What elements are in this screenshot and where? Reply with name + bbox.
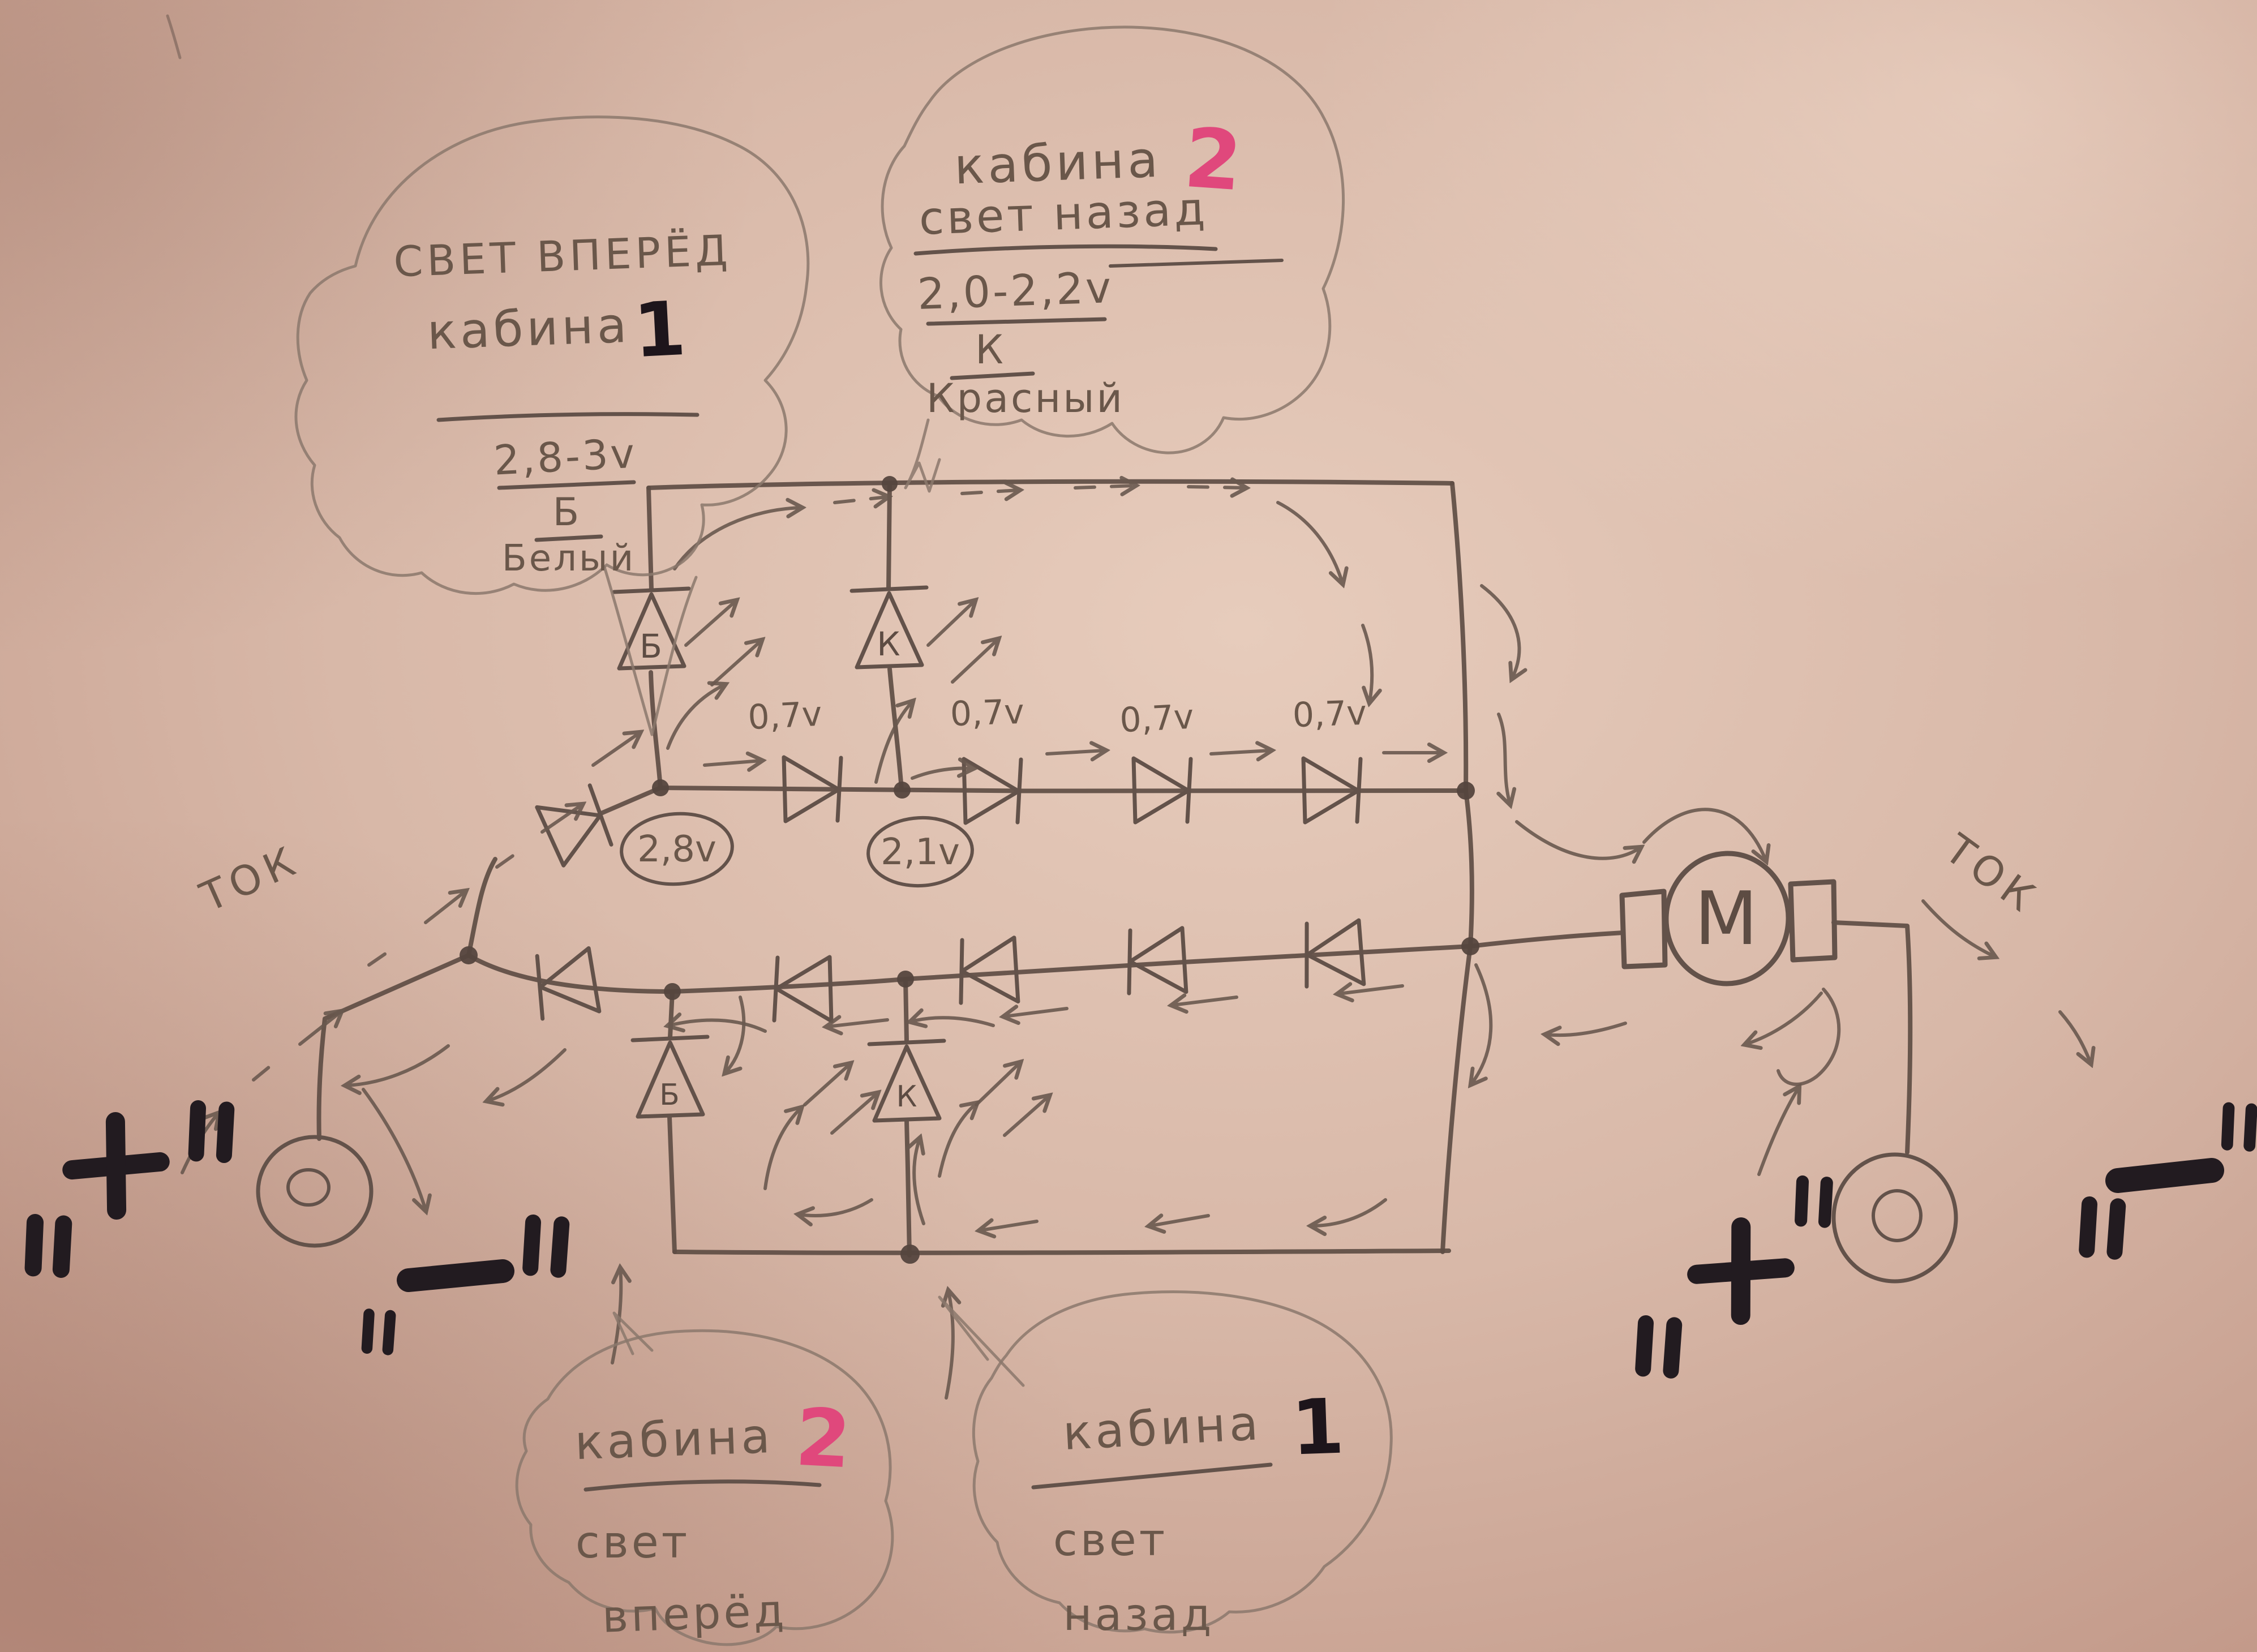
voltage-range: 2,8-3v bbox=[492, 429, 638, 484]
bottom-white-led-letter: Б bbox=[659, 1078, 680, 1112]
junction-node bbox=[460, 946, 478, 964]
red-led1-anode-wire bbox=[889, 484, 890, 589]
cab-word: кабина bbox=[574, 1408, 774, 1470]
wire-letter: К bbox=[975, 327, 1003, 373]
cab-number: 1 bbox=[632, 285, 688, 375]
voltage-range: 2,0-2,2v bbox=[917, 262, 1114, 319]
diode-drop-label: 0,7v bbox=[950, 692, 1025, 735]
wire-color-name: Красный bbox=[926, 375, 1125, 422]
wire-letter: Б bbox=[553, 490, 580, 535]
junction-node bbox=[652, 779, 669, 796]
cab-number: 2 bbox=[793, 1392, 853, 1487]
junction-node bbox=[894, 782, 911, 799]
red-led2-anode-wire bbox=[906, 979, 907, 1041]
bottom-bus-wire bbox=[675, 1251, 1449, 1253]
bubble-line1: свет bbox=[1053, 1515, 1168, 1566]
motor-label: M bbox=[1694, 876, 1758, 962]
minus-icon bbox=[409, 1271, 503, 1280]
cab-word: кабина bbox=[1062, 1395, 1263, 1461]
red-led2-cathode-wire bbox=[907, 1121, 909, 1255]
bubble-title: свет назад bbox=[918, 182, 1209, 245]
bubble-line1: свет bbox=[576, 1517, 690, 1568]
node-voltage-right: 2,1v bbox=[881, 831, 960, 873]
photographed-schematic-page: Б К Б К M 2,8v 2,1v 0,7v 0,7v 0,7v 0,7v … bbox=[0, 0, 2257, 1652]
bubble-line2: вперёд bbox=[601, 1585, 787, 1642]
junction-node bbox=[664, 983, 681, 1000]
bottom-red-led-letter: К bbox=[896, 1080, 917, 1114]
node-voltage-left: 2,8v bbox=[637, 829, 716, 870]
diode-drop-label: 0,7v bbox=[1292, 693, 1367, 736]
junction-node bbox=[882, 476, 898, 492]
bubble-line2: назад bbox=[1063, 1590, 1215, 1641]
top-white-led-letter: Б bbox=[640, 627, 662, 666]
top-red-led-letter: К bbox=[877, 625, 900, 663]
diode-drop-label: 0,7v bbox=[1119, 697, 1195, 741]
diode-drop-label: 0,7v bbox=[747, 694, 823, 738]
wire-color-name: Белый bbox=[502, 538, 636, 580]
minus-icon bbox=[2118, 1170, 2212, 1181]
cab-number: 1 bbox=[1290, 1382, 1346, 1472]
cab-word: кабина bbox=[426, 297, 631, 361]
junction-node bbox=[897, 971, 914, 988]
junction-node bbox=[900, 1245, 920, 1264]
junction-node bbox=[1457, 782, 1475, 800]
junction-node bbox=[1461, 937, 1479, 955]
